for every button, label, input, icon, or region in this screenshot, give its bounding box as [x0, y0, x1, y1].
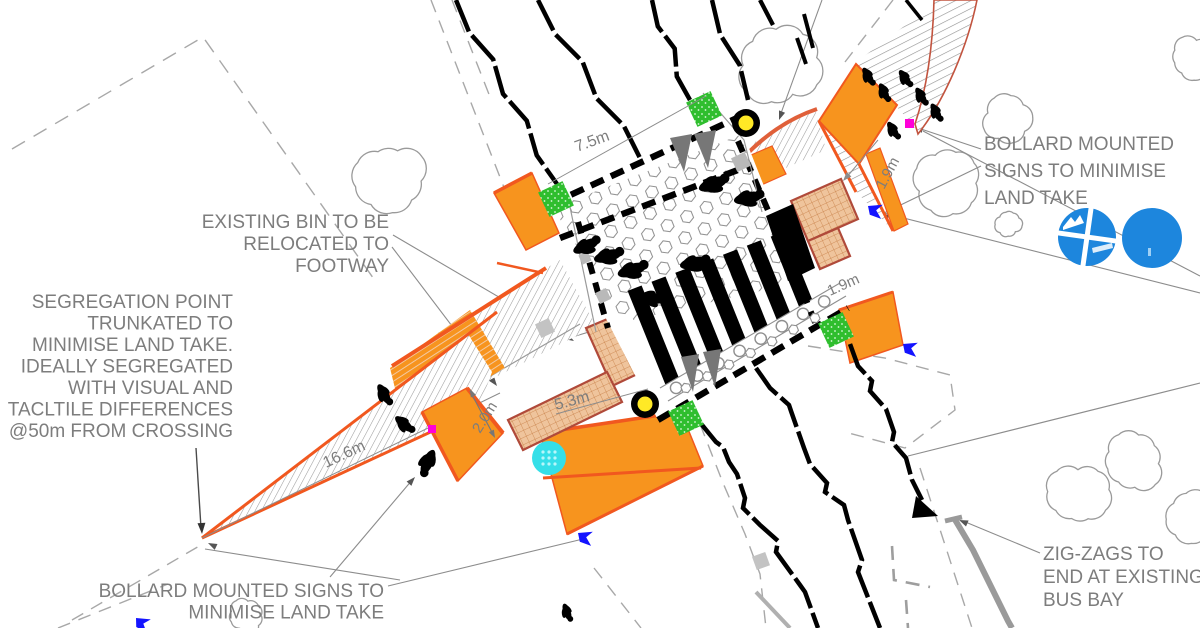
svg-text:ZIG-ZAGS TO: ZIG-ZAGS TO	[1043, 544, 1164, 565]
svg-text:MINIMISE LAND TAKE.: MINIMISE LAND TAKE.	[32, 335, 233, 356]
svg-text:TACLTILE DIFFERENCES: TACLTILE DIFFERENCES	[8, 400, 233, 421]
svg-text:MINIMISE LAND TAKE: MINIMISE LAND TAKE	[188, 603, 384, 624]
svg-text:EXISTING BIN TO BE: EXISTING BIN TO BE	[202, 212, 389, 233]
svg-text:BOLLARD MOUNTED SIGNS TO: BOLLARD MOUNTED SIGNS TO	[99, 581, 384, 602]
svg-text:LAND TAKE: LAND TAKE	[984, 188, 1088, 209]
svg-text:RELOCATED TO: RELOCATED TO	[243, 234, 389, 255]
svg-text:END AT EXISTING: END AT EXISTING	[1043, 567, 1200, 588]
svg-text:IDEALLY SEGREGATED: IDEALLY SEGREGATED	[21, 357, 233, 378]
svg-text:@50m FROM CROSSING: @50m FROM CROSSING	[9, 421, 233, 442]
svg-text:WITH VISUAL AND: WITH VISUAL AND	[68, 378, 233, 399]
svg-text:SEGREGATION POINT: SEGREGATION POINT	[32, 292, 234, 313]
svg-text:TRUNKATED TO: TRUNKATED TO	[87, 314, 233, 335]
svg-text:SIGNS TO MINIMISE: SIGNS TO MINIMISE	[984, 161, 1166, 182]
svg-text:BOLLARD MOUNTED: BOLLARD MOUNTED	[984, 134, 1174, 155]
svg-text:BUS BAY: BUS BAY	[1043, 590, 1124, 611]
svg-text:FOOTWAY: FOOTWAY	[295, 256, 389, 277]
